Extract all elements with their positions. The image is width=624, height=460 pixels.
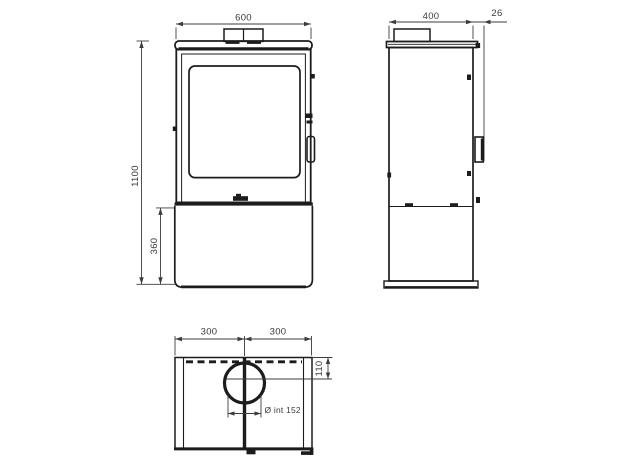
- dim-side-handle-offset: 26: [473, 8, 507, 161]
- dim-side-depth: 400: [389, 11, 473, 39]
- front-hinge: [173, 127, 177, 132]
- front-hearth-divider: [175, 202, 313, 205]
- top-view: 300 300 110: [174, 327, 333, 455]
- technical-drawing-canvas: 600: [0, 0, 624, 460]
- front-door: [173, 50, 315, 203]
- dim-front-width-label: 600: [235, 13, 252, 24]
- dim-top-flue-diameter: Ø int 152: [228, 395, 301, 418]
- front-door-window: [189, 66, 300, 178]
- side-door-handle: [475, 43, 483, 203]
- dim-top-flue-offset: 110: [312, 358, 333, 380]
- dim-side-depth-label: 400: [423, 11, 440, 22]
- side-flue-collar: [394, 29, 430, 42]
- dim-side-handle-offset-label: 26: [491, 8, 502, 19]
- dim-top-flue-diameter-label: Ø int 152: [265, 405, 301, 415]
- front-base: [175, 206, 313, 288]
- front-top-plate: [175, 41, 312, 50]
- side-body: [387, 48, 473, 282]
- front-view: 600: [130, 13, 315, 288]
- side-plinth: [384, 281, 478, 288]
- front-latch: [306, 114, 313, 119]
- dim-top-halves: 300 300: [175, 327, 312, 357]
- dim-front-base-height: 360: [149, 208, 175, 284]
- side-top-plate: [387, 42, 478, 48]
- dim-top-flue-offset-label: 110: [314, 360, 325, 376]
- dim-top-half-right-label: 300: [270, 327, 287, 338]
- dim-top-half-left-label: 300: [201, 327, 218, 338]
- brand-logo: [233, 194, 248, 201]
- side-divider: [389, 203, 473, 206]
- dim-front-height-label: 1100: [130, 165, 141, 187]
- side-view: 400 26: [384, 8, 507, 288]
- dim-front-base-height-label: 360: [149, 238, 160, 255]
